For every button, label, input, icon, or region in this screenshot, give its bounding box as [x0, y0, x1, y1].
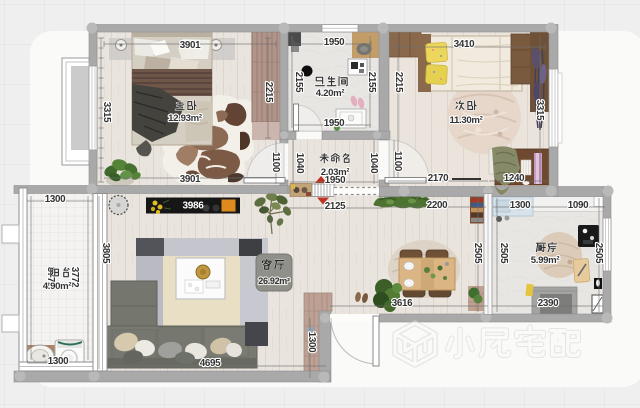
svg-text:1300: 1300: [306, 332, 317, 353]
svg-text:2505: 2505: [472, 243, 483, 264]
svg-text:2170: 2170: [428, 173, 449, 184]
svg-text:1240: 1240: [504, 173, 525, 184]
svg-text:11.30m²: 11.30m²: [449, 115, 482, 126]
svg-text:4.90m²: 4.90m²: [43, 281, 72, 292]
svg-text:2505: 2505: [593, 243, 604, 264]
svg-text:1300: 1300: [45, 194, 66, 205]
svg-text:2215: 2215: [263, 82, 274, 103]
svg-text:3986: 3986: [182, 201, 204, 212]
svg-text:2.03m²: 2.03m²: [321, 167, 350, 178]
svg-text:5.99m²: 5.99m²: [531, 255, 560, 266]
svg-text:2390: 2390: [538, 298, 559, 309]
svg-text:1950: 1950: [324, 118, 345, 129]
svg-text:2155: 2155: [293, 72, 304, 93]
svg-text:12.93m²: 12.93m²: [168, 113, 202, 124]
svg-text:2215: 2215: [393, 72, 404, 93]
svg-text:3616: 3616: [392, 298, 413, 309]
svg-text:1100: 1100: [270, 152, 281, 173]
svg-text:3315: 3315: [101, 102, 112, 123]
svg-text:2505: 2505: [498, 243, 509, 264]
svg-text:2155: 2155: [366, 72, 377, 93]
svg-text:1950: 1950: [324, 37, 345, 48]
svg-text:1090: 1090: [568, 200, 589, 211]
svg-text:4.20m²: 4.20m²: [316, 88, 345, 99]
svg-text:4695: 4695: [200, 358, 221, 369]
svg-text:1040: 1040: [368, 153, 379, 174]
svg-text:26.92m²: 26.92m²: [258, 276, 290, 286]
svg-text:1040: 1040: [294, 153, 305, 174]
svg-text:3901: 3901: [180, 40, 201, 51]
svg-text:3410: 3410: [454, 39, 475, 50]
svg-text:1300: 1300: [510, 200, 531, 211]
svg-text:3901: 3901: [180, 174, 201, 185]
svg-text:3315: 3315: [534, 100, 545, 121]
svg-text:3805: 3805: [100, 243, 111, 264]
svg-text:2200: 2200: [427, 200, 448, 211]
svg-text:1300: 1300: [48, 356, 69, 367]
svg-text:2125: 2125: [325, 201, 346, 212]
svg-text:1100: 1100: [392, 151, 403, 172]
